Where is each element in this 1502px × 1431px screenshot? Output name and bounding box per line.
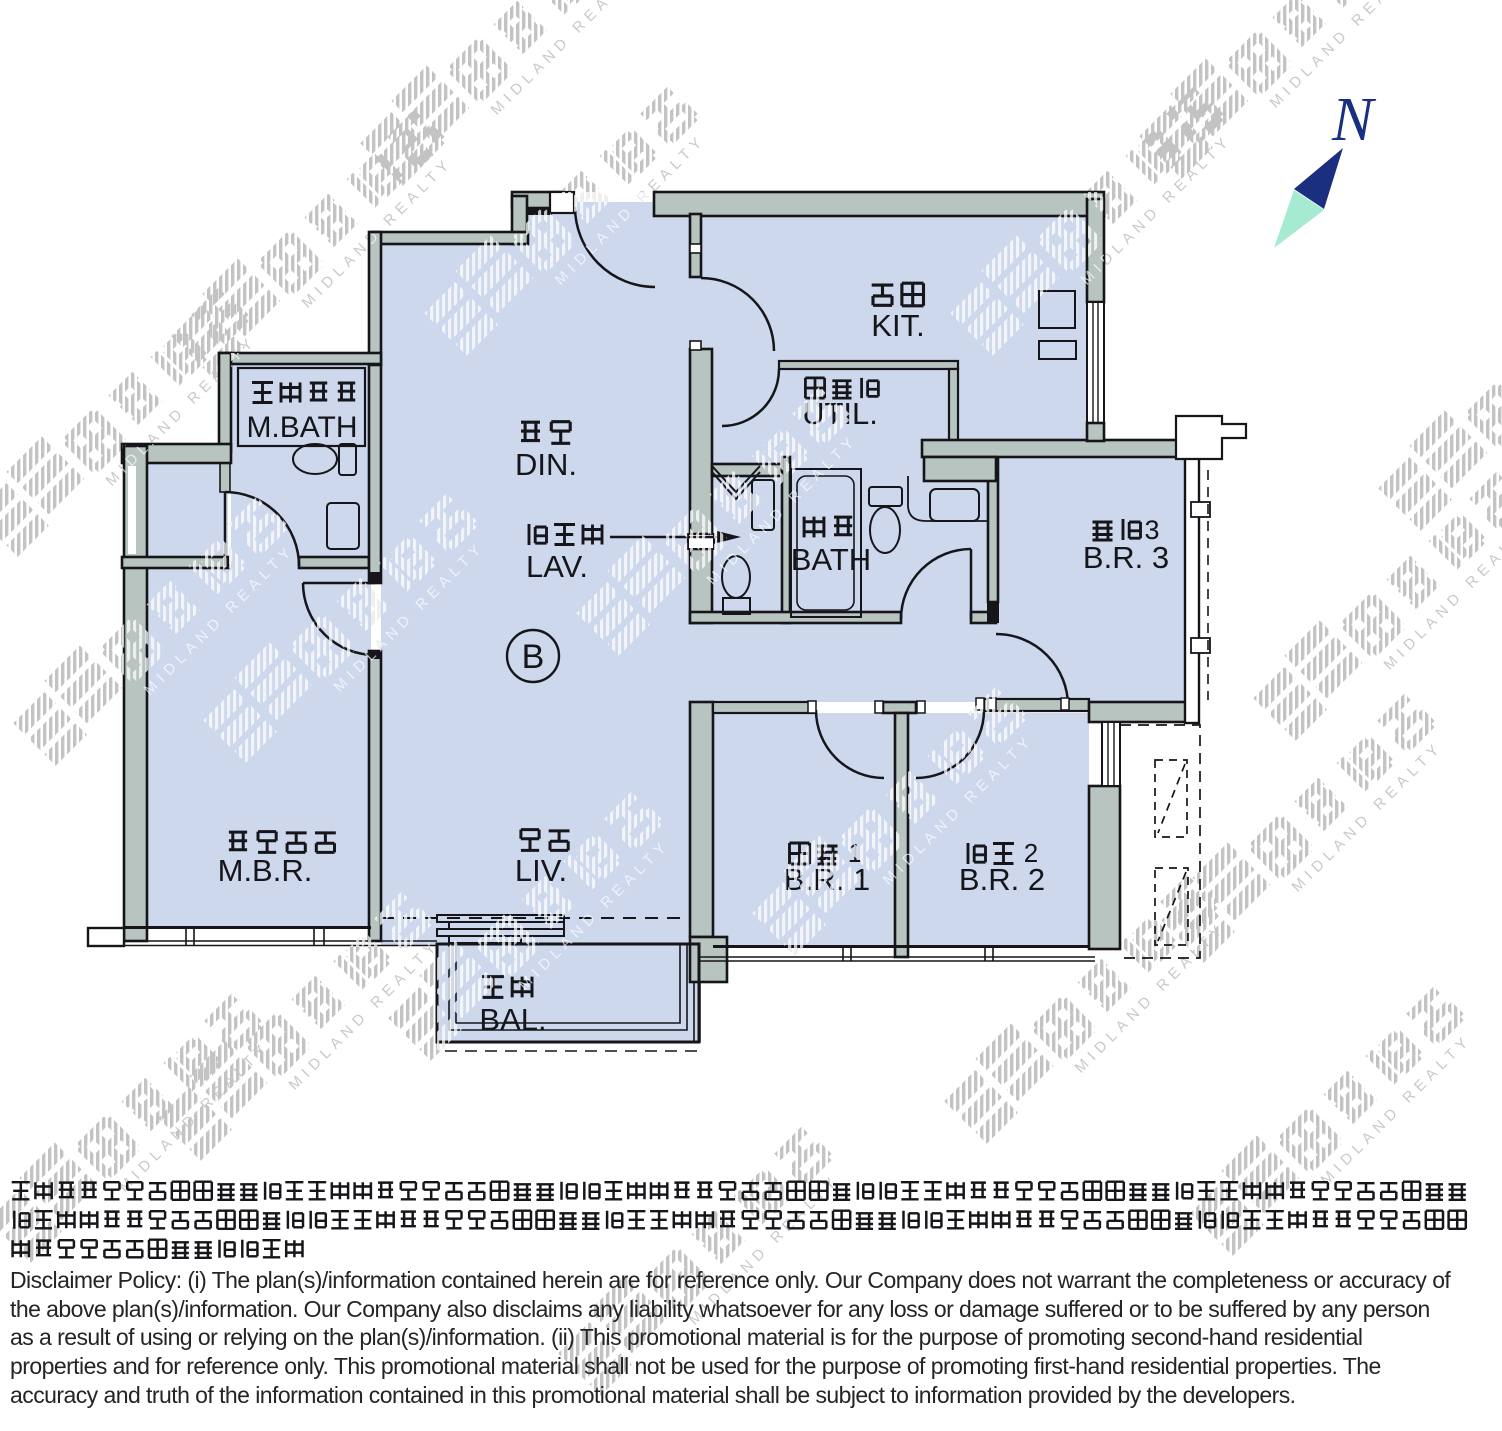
svg-text:Disclaimer Policy: (i) The pla: Disclaimer Policy: (i) The plan(s)/infor… xyxy=(10,1267,1451,1293)
svg-text:BAL.: BAL. xyxy=(479,1002,546,1037)
svg-text:accuracy and truth of the info: accuracy and truth of the information co… xyxy=(10,1382,1296,1408)
svg-text:N: N xyxy=(1331,86,1377,154)
svg-text:DIN.: DIN. xyxy=(515,447,577,482)
svg-text:M.B.R.: M.B.R. xyxy=(218,853,313,888)
svg-text:M.BATH: M.BATH xyxy=(246,411,357,444)
svg-text:BATH: BATH xyxy=(791,542,871,577)
svg-text:the above plan(s)/information.: the above plan(s)/information. Our Compa… xyxy=(10,1296,1430,1322)
svg-text:properties and for reference o: properties and for reference only. This … xyxy=(10,1353,1381,1379)
svg-text:B.R. 2: B.R. 2 xyxy=(959,862,1045,897)
svg-text:KIT.: KIT. xyxy=(871,308,924,343)
svg-text:as a result of using or relyin: as a result of using or relying on the p… xyxy=(10,1324,1362,1350)
svg-text:B: B xyxy=(522,638,545,676)
svg-text:LAV.: LAV. xyxy=(526,549,588,584)
svg-text:B.R. 3: B.R. 3 xyxy=(1083,540,1169,575)
